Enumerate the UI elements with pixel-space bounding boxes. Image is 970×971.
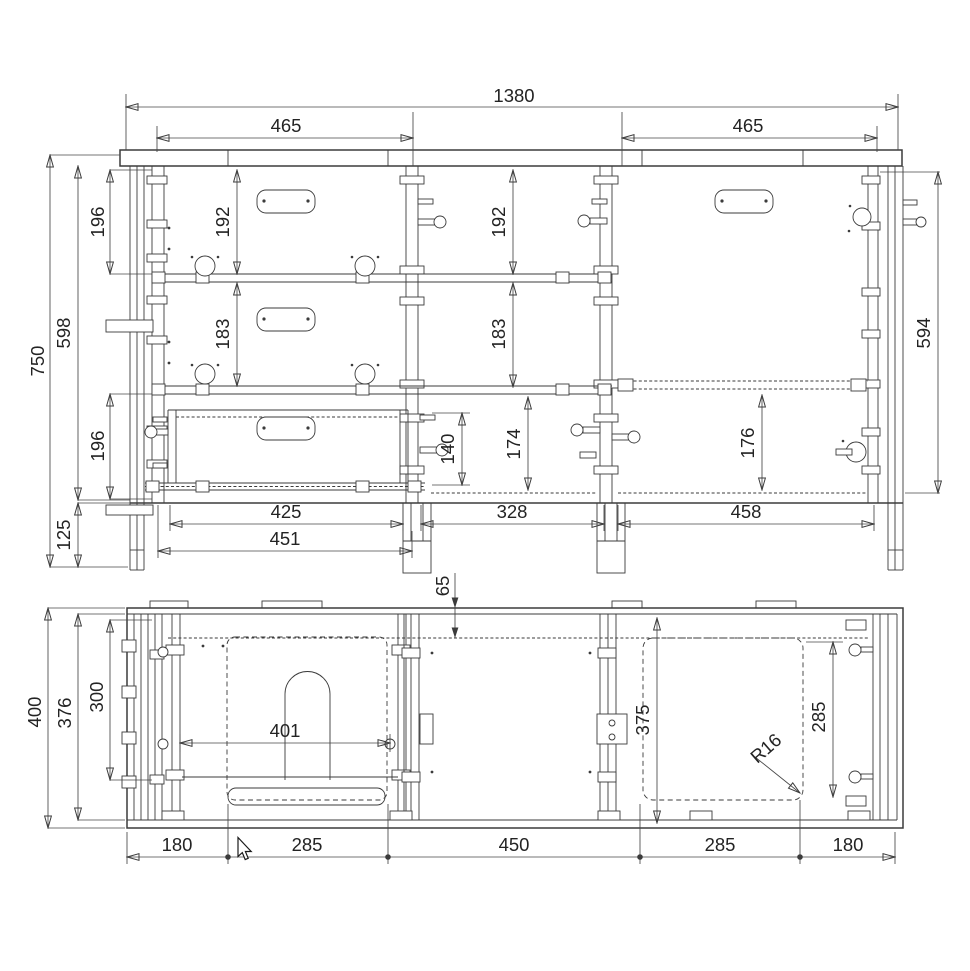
dim-mid-opening-width: 328 [497,501,528,522]
dim-overall-height: 750 [27,346,48,377]
plan-outline [127,601,903,828]
dim-back-offset: 65 [432,576,453,597]
dim-drawer-depth: 300 [86,682,107,713]
dim-right-interior-height: 594 [913,318,934,349]
plan-mid-bay [402,614,627,820]
cabinet-technical-drawing: 1380 465 465 750 598 196 196 125 [0,0,970,971]
bottom-rails [130,481,903,503]
divider-right [594,166,625,573]
dim-lower-offset: 196 [87,431,108,462]
dim-drawer-box-height: 140 [437,434,458,465]
dim-overall-depth: 400 [24,697,45,728]
dim-left-middle-drawer: 183 [212,319,233,350]
dim-mid-top-opening: 192 [488,207,509,238]
plan-view [122,601,903,828]
plan-left-bay [158,614,410,820]
dowel-pins [145,199,926,468]
dim-bay-width-left: 465 [271,115,302,136]
plan-bottom-brackets [162,811,870,820]
right-side-panel [862,166,903,570]
dim-mid-middle-opening: 183 [488,319,509,350]
dim-chain-3: 450 [499,834,530,855]
dim-mid-lower-opening: 174 [503,429,524,460]
dim-drawer-front-width: 451 [270,528,301,549]
dim-overall-width: 1380 [493,85,534,106]
shelf-rails [152,272,868,395]
dim-chain-2: 285 [292,834,323,855]
left-side-panel [106,166,170,570]
dim-upper-offset: 196 [87,207,108,238]
plan-right-bay [643,614,888,820]
divider-left [400,166,431,573]
dim-door-depth: 375 [632,705,653,736]
dim-drawer-width: 425 [271,501,302,522]
mouse-cursor [238,838,251,860]
dim-left-top-drawer: 192 [212,207,233,238]
dim-corner-radius: R16 [746,729,785,767]
technical-drawing-page: 1380 465 465 750 598 196 196 125 [0,0,970,971]
dim-base-height: 125 [53,520,74,551]
dim-chain-5: 180 [833,834,864,855]
dim-chain-1: 180 [162,834,193,855]
plan-left-side [122,614,164,820]
dim-carcass-height: 598 [53,318,74,349]
worktop [120,150,902,166]
dim-right-opening-width: 458 [731,501,762,522]
dim-bay-width-right: 465 [733,115,764,136]
dim-chain-4: 285 [705,834,736,855]
dim-plan-drawer-width: 401 [270,720,301,741]
dim-inner-depth: 376 [54,698,75,729]
dim-right-lower-opening: 176 [737,428,758,459]
dim-door-width: 285 [808,702,829,733]
